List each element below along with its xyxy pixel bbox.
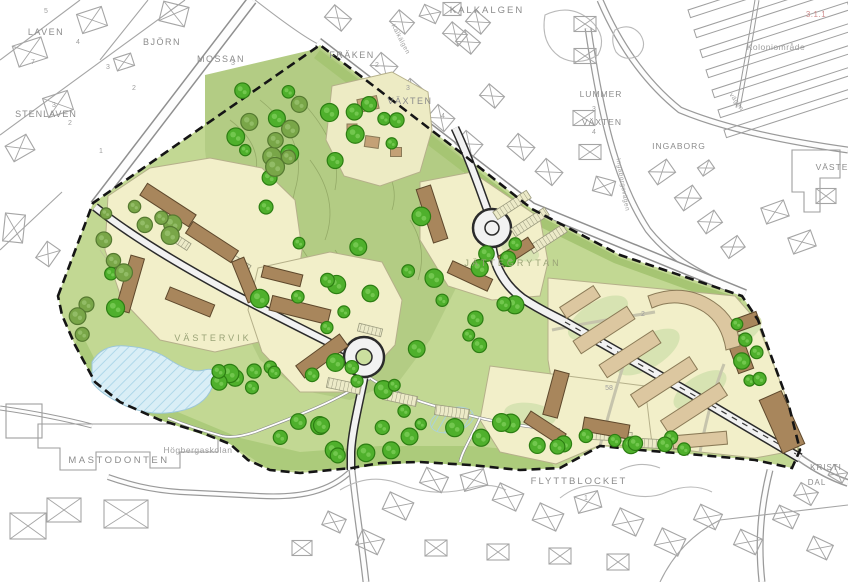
house-symbol (443, 22, 468, 46)
tree-icon (509, 238, 521, 250)
tree-icon (212, 365, 226, 379)
tree-icon (346, 125, 364, 143)
tree-icon (227, 128, 245, 146)
house-symbol (549, 548, 571, 564)
tree-icon (579, 429, 592, 442)
house-symbol (607, 554, 629, 570)
tree-icon (628, 436, 642, 450)
tree-icon (401, 428, 418, 445)
tree-icon (137, 217, 152, 232)
tree-icon (463, 329, 475, 341)
terrain-line (620, 464, 660, 470)
label-fraken: FRÄKEN (329, 50, 375, 60)
house-symbol (456, 30, 481, 54)
house-symbol (788, 230, 816, 254)
tree-icon (425, 269, 443, 287)
label-vastervik: VÄSTERVIK (174, 333, 251, 343)
tree-icon (446, 419, 464, 437)
tree-icon (281, 150, 295, 164)
parcel-number: 5 (44, 8, 48, 15)
tree-icon (734, 353, 750, 369)
tree-icon (436, 294, 448, 306)
house-symbol (420, 467, 449, 493)
tree-icon (398, 405, 410, 417)
tree-icon (115, 264, 132, 281)
house-symbol (579, 145, 601, 160)
tree-icon (346, 104, 362, 120)
tree-icon (750, 346, 763, 359)
label-flyttblocket: FLYTTBLOCKET (531, 476, 628, 487)
house-symbol (654, 528, 686, 556)
parcel-number: 2 (375, 62, 379, 69)
roundabout-island (356, 349, 372, 365)
house-symbol (612, 508, 644, 536)
house-symbol (574, 491, 602, 514)
house-symbol (159, 1, 189, 27)
street-line (352, 470, 366, 582)
tree-icon (100, 208, 111, 219)
tree-icon (609, 434, 621, 446)
tree-icon (235, 83, 250, 98)
parcel-number: 2 (68, 120, 72, 127)
label-koloniomrade: Koloniområde (747, 42, 805, 52)
parcel-number: 4 (592, 129, 596, 136)
label-vaxten-2: VÄXTEN (582, 117, 622, 127)
tree-icon (292, 291, 304, 303)
house-symbol (697, 160, 714, 176)
tree-icon (753, 372, 766, 385)
tree-icon (493, 414, 511, 432)
label-laven: LAVEN (28, 27, 64, 37)
tree-icon (155, 211, 168, 224)
label-dal: DAL (808, 478, 827, 487)
label-vaste: VÄSTE (816, 162, 848, 172)
tree-icon (375, 420, 389, 434)
tree-icon (107, 299, 125, 317)
parcel-number: 1 (584, 495, 588, 502)
label-kalkalgen: KALKALGEN (450, 5, 525, 16)
label-mastodonten: MASTODONTEN (68, 455, 169, 466)
tree-icon (362, 285, 379, 302)
tree-icon (314, 417, 330, 433)
tree-icon (327, 354, 345, 372)
house-symbol (648, 159, 675, 185)
tree-icon (386, 138, 397, 149)
tree-icon (268, 133, 283, 148)
tree-icon (240, 145, 251, 156)
tree-icon (161, 227, 179, 245)
house-symbol (532, 503, 564, 531)
tree-icon (402, 265, 415, 278)
label-street-kalkalgen: Kalkälgen (389, 23, 411, 55)
parcel-number: 3 (231, 60, 235, 67)
house-symbol (425, 540, 447, 556)
tree-icon (321, 273, 335, 287)
tree-icon (282, 86, 294, 98)
parcel-number: 3 (52, 102, 56, 109)
house-symbol (419, 4, 441, 23)
label-ref-311: 3.1.1 (806, 10, 826, 19)
tree-icon (327, 153, 343, 169)
roundabout-island (485, 221, 499, 235)
street-line (255, 0, 318, 44)
tree-icon (247, 364, 261, 378)
house-symbol (674, 185, 701, 211)
house-symbol (773, 505, 800, 529)
tree-icon (473, 429, 490, 446)
tree-icon (412, 207, 431, 226)
house-symbol (698, 210, 723, 234)
parcel-number: 58 (605, 385, 613, 392)
allotment-stripes (688, 0, 848, 138)
tree-icon (678, 443, 691, 456)
street-line (100, 0, 148, 60)
tree-icon (273, 430, 287, 444)
tree-icon (320, 103, 338, 121)
tree-icon (658, 437, 673, 452)
parcel-number: 3 (106, 64, 110, 71)
tree-icon (351, 375, 363, 387)
house-symbol (10, 513, 46, 539)
tree-icon (497, 297, 511, 311)
label-hogbergaskolan: Högbergaskolan (164, 445, 233, 455)
house-symbol (592, 176, 615, 196)
tree-icon (731, 318, 742, 329)
label-bjorn: BJÖRN (143, 37, 181, 47)
house-symbol (36, 241, 61, 267)
parcel-number: 2 (132, 85, 136, 92)
house-symbol (761, 200, 789, 224)
house-symbol (460, 469, 488, 492)
tree-icon (390, 113, 405, 128)
tree-icon (388, 379, 400, 391)
label-ingaborg: INGABORG (652, 141, 706, 151)
house-symbol (480, 84, 505, 108)
terrain-line (560, 486, 712, 499)
cottage-building (364, 136, 379, 149)
tree-icon (293, 237, 305, 249)
house-symbol (3, 213, 26, 243)
parcel-number: 2 (641, 311, 645, 318)
house-symbol (12, 37, 47, 67)
house-symbol (535, 158, 563, 185)
tree-icon (415, 419, 426, 430)
tree-icon (468, 311, 483, 326)
tree-icon (268, 366, 280, 378)
tree-icon (259, 200, 273, 214)
label-kristi: KRISTI (810, 463, 842, 472)
house-symbol (487, 544, 509, 560)
tree-icon (361, 97, 376, 112)
tree-icon (75, 327, 89, 341)
house-symbol (292, 541, 312, 556)
tree-icon (408, 341, 425, 358)
parcel-number: 3 (592, 106, 596, 113)
parcel-number: 1 (99, 148, 103, 155)
house-symbol (113, 53, 134, 71)
street-line (0, 408, 92, 426)
label-jattegrytan: JÄTTEGRYTAN (464, 258, 561, 268)
house-symbol (507, 133, 535, 160)
label-stenlaven: STENLAVEN (15, 109, 77, 119)
label-mossan: MOSSAN (197, 54, 245, 64)
tree-icon (251, 289, 269, 307)
parcel-number: 4 (76, 39, 80, 46)
house-symbol (77, 6, 108, 33)
parcel-number: 3 (406, 85, 410, 92)
terrain-line (340, 479, 506, 492)
label-lummer: LUMMER (580, 89, 623, 99)
tree-icon (305, 368, 319, 382)
site-plan-map: KALKALGENLAVENBJÖRNMOSSANSTENLAVENFRÄKEN… (0, 0, 848, 582)
tree-icon (739, 333, 752, 346)
tree-icon (69, 308, 86, 325)
tree-icon (282, 120, 299, 137)
street-line (760, 470, 770, 582)
tree-icon (241, 113, 258, 130)
tree-icon (350, 239, 367, 256)
parcel-number: 4 (441, 113, 445, 120)
tree-icon (330, 448, 345, 463)
house-symbol (324, 5, 351, 31)
tree-icon (383, 442, 400, 459)
house-symbol (694, 504, 723, 530)
house-symbol (5, 134, 35, 162)
tree-icon (550, 439, 565, 454)
tree-icon (357, 444, 374, 461)
tree-icon (378, 112, 391, 125)
tree-icon (246, 381, 259, 394)
house-symbol (721, 236, 745, 259)
house-symbol (816, 189, 836, 204)
parcel-number: 7 (31, 59, 35, 66)
tree-icon (291, 414, 307, 430)
tree-icon (345, 361, 358, 374)
tree-icon (291, 96, 307, 112)
tree-icon (338, 306, 350, 318)
street-line (660, 505, 848, 582)
tree-icon (321, 321, 333, 333)
house-symbol (382, 492, 414, 520)
tree-icon (96, 232, 112, 248)
tree-icon (128, 200, 140, 212)
house-symbol (807, 536, 834, 560)
label-vaxten-1: VÄXTEN (387, 96, 432, 106)
tree-icon (472, 338, 486, 352)
house-symbol (322, 511, 346, 533)
tree-icon (529, 438, 545, 454)
house-symbol (47, 498, 81, 522)
house-symbol (104, 500, 148, 528)
